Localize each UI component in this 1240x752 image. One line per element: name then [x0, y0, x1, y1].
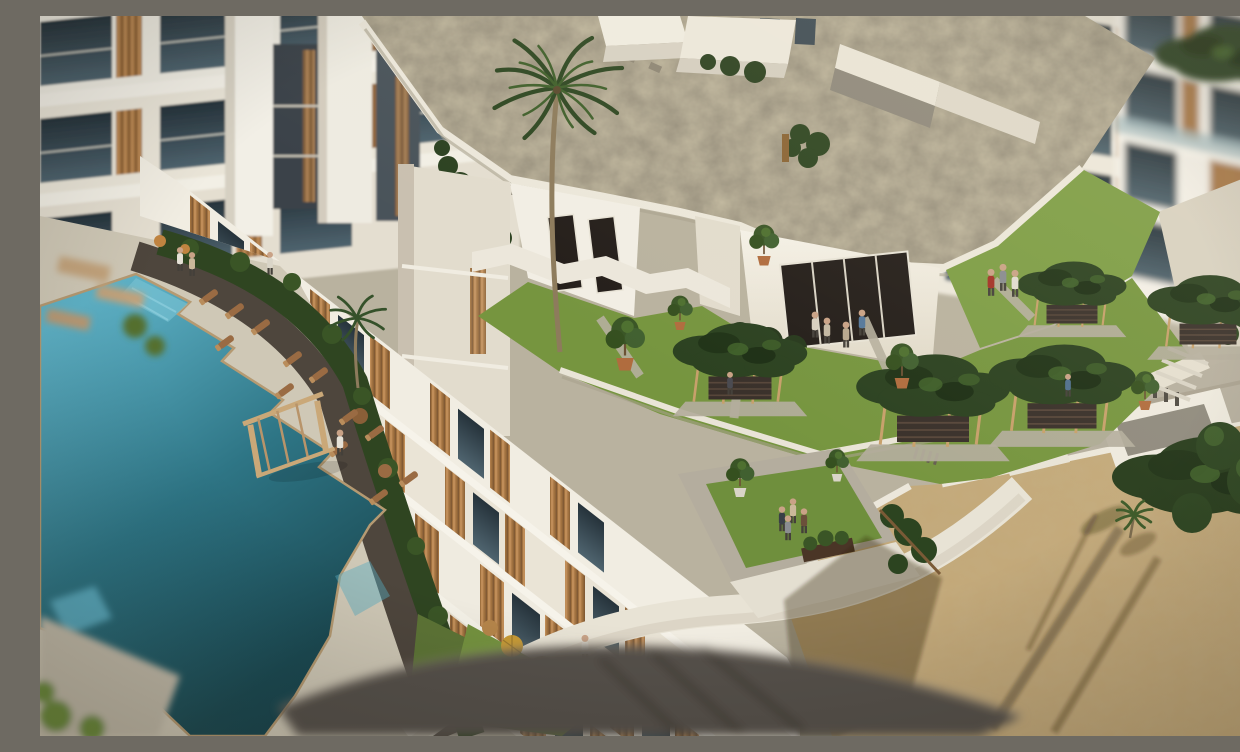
vignette-overlay — [40, 16, 1240, 736]
scene-canvas: Aerial architectural rendering of a resi… — [40, 16, 1240, 736]
architectural-rendering: Aerial architectural rendering of a resi… — [40, 16, 1240, 736]
